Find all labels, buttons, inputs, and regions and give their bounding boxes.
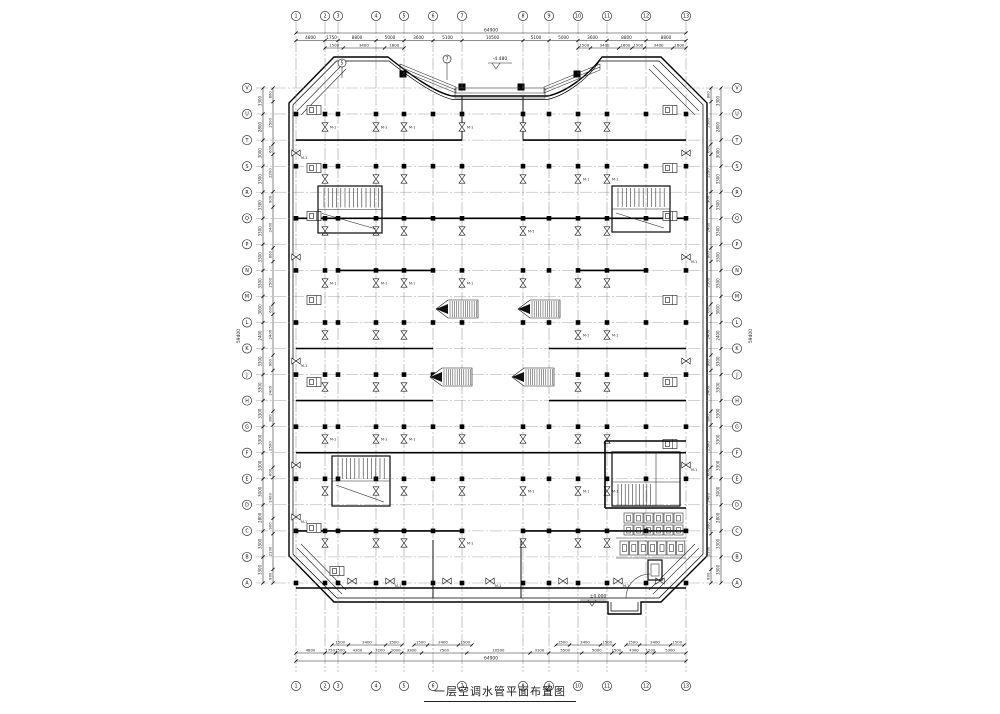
inner-wall: [293, 61, 703, 598]
axis-bubble-label: 12: [643, 684, 649, 690]
axis-bubble-label: 13: [683, 684, 689, 690]
dim-value: 600: [706, 468, 711, 476]
staircase: [332, 456, 390, 506]
fcu-symbol: [322, 487, 328, 495]
column-marker: [547, 477, 552, 482]
dim-value: 3400: [654, 43, 664, 48]
column-marker: [644, 112, 649, 117]
dim-value: 5100: [531, 35, 542, 40]
escalator: [436, 300, 478, 318]
dim-value: 3400: [580, 640, 590, 645]
dim-value: 2400: [716, 330, 721, 341]
dim-value: 3300: [716, 408, 721, 419]
cabinet-symbol: [307, 106, 321, 115]
dim-value: 2200: [706, 168, 711, 178]
axis-bubble-label: 4: [374, 684, 377, 690]
fcu-label: M-1: [330, 126, 336, 130]
column-marker: [576, 372, 581, 377]
dim-value: 3400: [359, 43, 369, 48]
wc-fixture: [622, 545, 626, 552]
dim-value: 3300: [716, 252, 721, 263]
fcu-label: M-1: [612, 490, 618, 494]
column-marker: [294, 581, 299, 586]
axis-bubble-label: 2: [323, 14, 326, 20]
axis-bubble-label: H: [735, 398, 739, 404]
column-marker: [460, 424, 465, 429]
dim-value: 800: [268, 250, 273, 258]
fcu-label: M-1: [612, 178, 618, 182]
fcu-label: M-1: [691, 260, 697, 264]
column-marker: [374, 164, 379, 169]
wc-fixture: [660, 545, 664, 552]
column-marker: [374, 424, 379, 429]
fcu-label: M-1: [409, 126, 415, 130]
dim-value: 4800: [305, 35, 316, 40]
dim-value: 3300: [716, 382, 721, 393]
dim-value: 800: [706, 91, 711, 99]
fcu-symbol: [459, 487, 465, 495]
dim-value: 3000: [258, 148, 263, 159]
column-marker: [431, 477, 436, 482]
cabinet-symbol: [307, 524, 321, 533]
entrance-column: [518, 84, 525, 91]
lift-car: [651, 564, 659, 576]
fcu-symbol: [520, 487, 526, 495]
column-marker: [336, 581, 341, 586]
column-marker: [323, 164, 328, 169]
wc-stall: [674, 513, 683, 523]
dim-total: 59400: [748, 329, 754, 343]
column-marker: [576, 320, 581, 325]
dim-value: 2000: [391, 648, 401, 653]
dim-value: 2100: [706, 546, 711, 556]
escalator: [430, 368, 472, 386]
dim-value: 3300: [407, 648, 417, 653]
fcu-symbol: [575, 435, 581, 443]
column-marker: [684, 477, 689, 482]
dim-value: 3300: [716, 174, 721, 185]
axis-bubble-label: Q: [735, 216, 739, 222]
fcu-symbol: [520, 435, 526, 443]
dim-value: 1500: [558, 640, 568, 645]
dim-value: 3300: [258, 226, 263, 237]
axis-bubble-label: 8: [521, 14, 524, 20]
fcu-symbol: [575, 383, 581, 391]
column-marker: [336, 320, 341, 325]
fcu-symbol: [373, 175, 379, 183]
fcu-symbol: [604, 331, 610, 339]
column-marker: [402, 164, 407, 169]
column-marker: [521, 164, 526, 169]
dim-value: 5300: [665, 648, 675, 653]
column-marker: [547, 424, 552, 429]
fcu-symbol: [459, 435, 465, 443]
fcu-symbol: [520, 279, 526, 287]
wc-stall: [674, 525, 683, 535]
axis-bubble-label: M: [735, 294, 739, 300]
dim-value: 1500: [335, 640, 345, 645]
column-marker: [605, 424, 610, 429]
fcu-symbol: [604, 279, 610, 287]
axis-bubble-label: 11: [604, 684, 610, 690]
column-marker: [402, 112, 407, 117]
fcu-label: M-1: [583, 334, 589, 338]
dim-value: 4300: [629, 648, 639, 653]
fcu-label: M-1: [301, 156, 307, 160]
axis-bubble-label: T: [735, 138, 739, 144]
dim-value: 800: [268, 572, 273, 580]
dim-total: 59400: [236, 329, 242, 343]
dim-value: 3300: [716, 356, 721, 367]
dim-value: 8800: [352, 35, 363, 40]
fcu-symbol: [401, 435, 407, 443]
fcu-symbol: [373, 331, 379, 339]
fcu-symbol: [373, 539, 379, 547]
column-marker: [547, 164, 552, 169]
dim-value: 900: [268, 522, 273, 530]
stair-arrow: [616, 213, 664, 228]
column-marker: [374, 112, 379, 117]
column-marker: [336, 112, 341, 117]
wc-fixture: [679, 545, 683, 552]
column-marker: [294, 372, 299, 377]
wc-stall: [634, 513, 643, 523]
dim-value: 3300: [258, 356, 263, 367]
fcu-label: M-1: [495, 584, 501, 588]
column-marker: [521, 477, 526, 482]
dim-value: 3300: [716, 95, 721, 106]
dim-value: 900: [268, 195, 273, 203]
wc-stall: [676, 541, 684, 555]
column-marker: [323, 320, 328, 325]
dim-value: 600: [268, 468, 273, 476]
column-marker: [374, 320, 379, 325]
column-marker: [576, 477, 581, 482]
fcu-symbol: [604, 175, 610, 183]
fcu-symbol: [604, 227, 610, 235]
dim-value: 2500: [268, 117, 273, 127]
dim-value: 1500: [612, 648, 622, 653]
axis-bubble-label: B: [245, 555, 248, 561]
dim-value: 1500: [329, 43, 339, 48]
fcu-symbol: [575, 123, 581, 131]
dim-value: 3200: [375, 648, 385, 653]
dim-value: 2800: [258, 512, 263, 523]
axis-bubble-label: D: [735, 503, 739, 509]
column-marker: [460, 164, 465, 169]
column-marker: [323, 581, 328, 586]
axis-bubble-label: 3: [336, 14, 339, 20]
entrance-column: [574, 71, 581, 78]
dim-value: 2400: [706, 493, 711, 503]
dim-value: 1500: [633, 43, 643, 48]
column-marker: [323, 372, 328, 377]
detail-mark-label: 5: [340, 61, 343, 67]
dim-value: 2400: [706, 329, 711, 339]
dim-value: 3300: [716, 434, 721, 445]
wc-stall: [664, 513, 673, 523]
axis-bubble-label: S: [735, 164, 738, 170]
fcu-label: M-1: [691, 468, 697, 472]
dimensions: 4800175088005000360051001050051005000360…: [236, 28, 754, 663]
dim-value: 3400: [600, 43, 610, 48]
fcu-symbol: [373, 487, 379, 495]
axis-bubble-label: L: [736, 320, 739, 326]
wc-stall: [620, 541, 628, 555]
fcu-symbol: [401, 175, 407, 183]
fcu-label: M-1: [612, 334, 618, 338]
fcu-label: M-1: [381, 282, 387, 286]
dim-value: 3000: [258, 304, 263, 315]
fcu-symbol: [575, 279, 581, 287]
column-marker: [684, 372, 689, 377]
axis-bubble-label: 13: [683, 14, 689, 20]
dim-value: 3000: [716, 148, 721, 159]
wc-stall: [624, 513, 633, 523]
column-marker: [374, 372, 379, 377]
axis-bubble-label: U: [735, 112, 739, 118]
fcu-label: M-1: [330, 282, 336, 286]
column-marker: [576, 424, 581, 429]
column-marker: [605, 320, 610, 325]
axis-bubble-label: 1: [294, 14, 297, 20]
column-marker: [547, 320, 552, 325]
dim-value: 2800: [258, 122, 263, 133]
fcu-label: M-1: [395, 584, 401, 588]
dim-value: 3300: [258, 408, 263, 419]
column-marker: [294, 112, 299, 117]
fcu-symbol: [373, 435, 379, 443]
column-marker: [684, 424, 689, 429]
dim-value: 2200: [268, 168, 273, 178]
axis-bubble-label: D: [245, 503, 249, 509]
stair-arrow: [322, 214, 376, 230]
fcu-label: M-1: [583, 490, 589, 494]
column-marker: [323, 268, 328, 273]
dim-value: 1500: [672, 640, 682, 645]
column-marker: [323, 112, 328, 117]
fcu-symbol: [682, 358, 690, 364]
fcu-symbol: [459, 279, 465, 287]
axis-bubble-label: 5: [402, 684, 405, 690]
dim-value: 2800: [716, 512, 721, 523]
axis-bubble-label: N: [735, 268, 739, 274]
dim-value: 3300: [258, 252, 263, 263]
dim-value: 3300: [258, 200, 263, 211]
dim-value: 5000: [558, 35, 569, 40]
column-marker: [431, 320, 436, 325]
axis-bubble-label: 2: [323, 684, 326, 690]
dim-value: 3300: [258, 278, 263, 289]
column-marker: [547, 581, 552, 586]
axis-bubble-label: 3: [336, 684, 339, 690]
dim-value: 2400: [268, 385, 273, 395]
wc-stall: [629, 541, 637, 555]
column-marker: [684, 320, 689, 325]
cabinet-symbol: [307, 296, 321, 305]
axis-bubble-label: 1: [294, 684, 297, 690]
dim-value: 1500: [416, 640, 426, 645]
column-marker: [294, 320, 299, 325]
axis-bubble-label: 9: [547, 14, 550, 20]
wc-fixture: [657, 516, 661, 522]
axis-bubble-label: M: [245, 294, 249, 300]
dim-value: 3300: [716, 200, 721, 211]
column-marker: [644, 372, 649, 377]
dim-value: 4800: [306, 648, 316, 653]
axis-bubble-label: 7: [460, 14, 463, 20]
wc-fixture: [641, 545, 645, 552]
fcu-label: M-1: [409, 438, 415, 442]
fcu-label: M-1: [301, 520, 307, 524]
wc-stall: [644, 513, 653, 523]
fcu-symbol: [322, 539, 328, 547]
dim-value: 2400: [706, 385, 711, 395]
column-marker: [644, 477, 649, 482]
column-marker: [605, 112, 610, 117]
grid-lines: [256, 22, 732, 672]
axis-bubble-label: S: [245, 164, 248, 170]
dim-value: 3300: [716, 278, 721, 289]
column-marker: [547, 268, 552, 273]
column-marker: [402, 320, 407, 325]
fcu-symbol: [520, 123, 526, 131]
dim-total: 64900: [484, 28, 498, 34]
fcu-label: M-1: [467, 126, 473, 130]
column-marker: [576, 164, 581, 169]
dim-total: 64900: [484, 656, 498, 662]
dim-value: 3300: [716, 564, 721, 575]
dim-value: 1750: [326, 35, 337, 40]
wc-fixture: [637, 516, 641, 522]
dim-value: 3300: [716, 460, 721, 471]
dim-value: 3400: [438, 640, 448, 645]
dim-value: 3400: [650, 640, 660, 645]
cabinet-symbol: [663, 378, 677, 387]
column-marker: [644, 581, 649, 586]
wc-stall: [658, 541, 666, 555]
fcu-symbol: [401, 383, 407, 391]
entrance-level-text: -4.480: [493, 56, 508, 62]
fcu-symbol: [322, 123, 328, 131]
fcu-symbol: [575, 487, 581, 495]
column-marker: [605, 581, 610, 586]
dim-value: 3300: [258, 538, 263, 549]
column-marker: [684, 112, 689, 117]
column-marker: [323, 477, 328, 482]
fcu-symbol: [373, 279, 379, 287]
column-marker: [402, 477, 407, 482]
fcu-symbol: [401, 123, 407, 131]
dim-value: 600: [268, 305, 273, 313]
dim-value: 2100: [268, 546, 273, 556]
dim-value: 2500: [706, 277, 711, 287]
fcu-symbol: [459, 539, 465, 547]
column-marker: [336, 424, 341, 429]
pipe-runs: [296, 96, 686, 598]
fcu-label: M-1: [467, 282, 473, 286]
fcu-symbol: [401, 227, 407, 235]
column-marker: [605, 372, 610, 377]
dim-value: 3300: [258, 382, 263, 393]
dim-value: 3000: [258, 486, 263, 497]
axis-bubble-label: P: [736, 242, 739, 248]
dim-value: 5000: [592, 648, 602, 653]
column-marker: [644, 320, 649, 325]
column-marker: [402, 581, 407, 586]
fcu-label: M-1: [381, 126, 387, 130]
axis-bubble-label: G: [735, 424, 739, 430]
dim-value: 2400: [268, 493, 273, 503]
dim-value: 1600: [389, 43, 399, 48]
fcu-symbol: [322, 435, 328, 443]
cabinet-symbol: [307, 378, 321, 387]
column-marker: [460, 320, 465, 325]
dim-value: 800: [268, 414, 273, 422]
axis-bubble-label: 12: [643, 14, 649, 20]
column-marker: [644, 424, 649, 429]
escalator: [518, 300, 560, 318]
dim-value: 10500: [492, 648, 505, 653]
entrance-column: [400, 71, 407, 78]
fcu-symbol: [459, 123, 465, 131]
fcu-symbol: [575, 227, 581, 235]
fcu-symbol: [604, 383, 610, 391]
axis-bubble-label: J: [245, 372, 247, 378]
column-marker: [336, 372, 341, 377]
wc-stall: [654, 525, 663, 535]
dim-value: 2400: [706, 222, 711, 232]
dim-value: 2500: [268, 277, 273, 287]
axis-bubble-label: 4: [374, 14, 377, 20]
dim-value: 3300: [716, 226, 721, 237]
column-marker: [431, 112, 436, 117]
fcu-symbol: [322, 331, 328, 339]
cabinet-symbol: [663, 164, 677, 173]
column-marker: [402, 372, 407, 377]
drawing-title: 一层空调水管平面布置图: [424, 683, 576, 702]
fcu-label: M-1: [467, 542, 473, 546]
axis-bubble-label: E: [245, 477, 248, 483]
wc-fixture: [669, 545, 673, 552]
axis-bubble-label: U: [245, 112, 249, 118]
dim-value: 2400: [258, 330, 263, 341]
detail-mark-label: 7: [445, 57, 448, 63]
dim-value: 1500: [460, 640, 470, 645]
dim-value: 600: [268, 145, 273, 153]
lift-shaft: [648, 560, 662, 580]
dim-value: 3000: [716, 486, 721, 497]
dim-value: 900: [706, 195, 711, 203]
wc-fixture: [627, 516, 631, 522]
cabinet-symbol: [307, 212, 321, 221]
fcu-symbol: [373, 227, 379, 235]
fcu-symbol: [322, 227, 328, 235]
dim-value: 600: [706, 145, 711, 153]
fcu-symbol: [401, 539, 407, 547]
cabinet-symbol: [663, 296, 677, 305]
fcu-label: M-1: [330, 438, 336, 442]
dim-value: 2500: [706, 441, 711, 451]
dim-value: 8800: [621, 35, 632, 40]
axis-bubble-label: L: [246, 320, 249, 326]
column-marker: [431, 424, 436, 429]
fcu-symbol: [575, 539, 581, 547]
axis-bubble-label: H: [245, 398, 249, 404]
column-marker: [644, 164, 649, 169]
column-marker: [684, 268, 689, 273]
axis-bubble-label: F: [246, 450, 249, 456]
